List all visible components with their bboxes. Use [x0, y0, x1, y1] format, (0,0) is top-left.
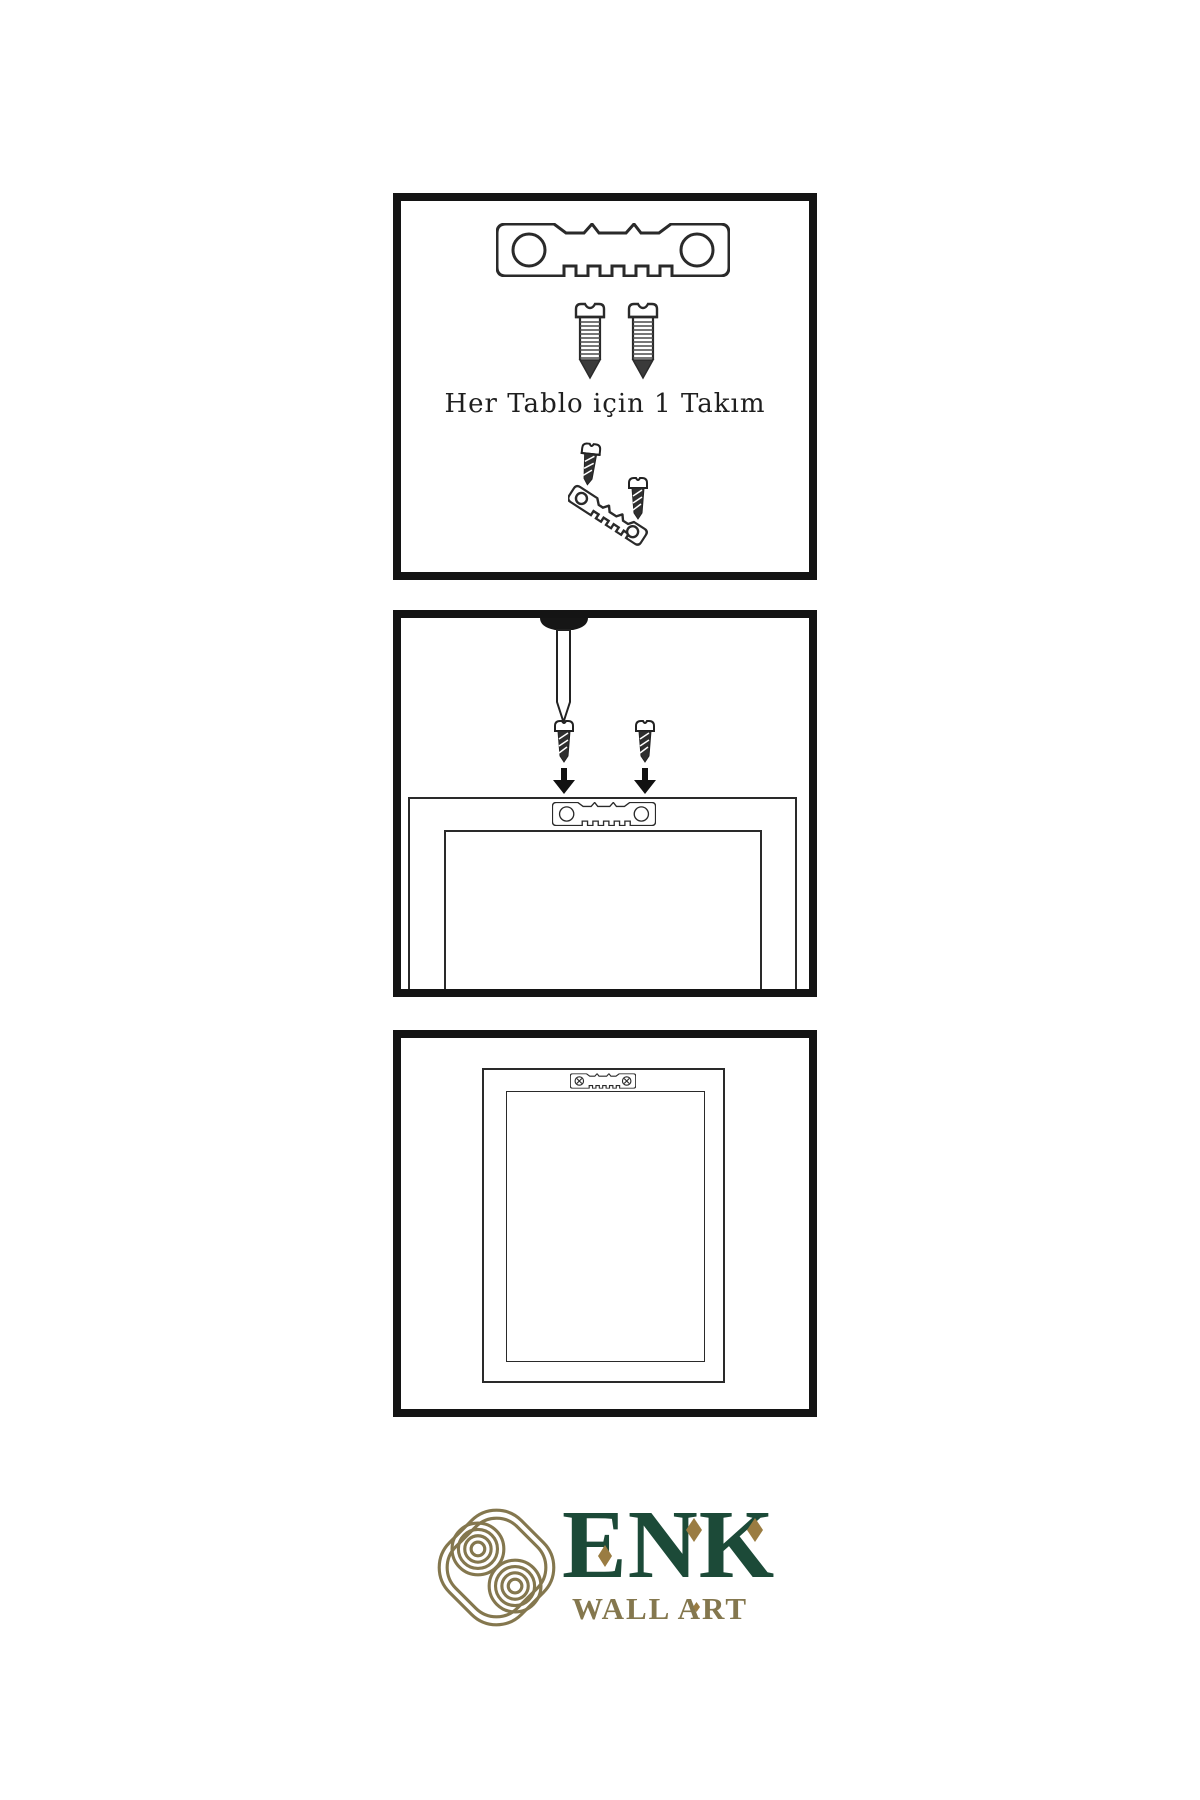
brand-name: ENK — [562, 1496, 775, 1593]
panel-hardware-kit: Her Tablo için 1 Takım — [393, 193, 817, 580]
screw-with-arrow-icon — [633, 718, 657, 794]
screw-with-arrow-icon — [552, 718, 576, 794]
wall-nail-icon — [539, 618, 589, 724]
angled-hanger-assembly-icon — [568, 441, 680, 551]
panel-hanging-result — [393, 1030, 817, 1417]
brand-subtitle: WALL ART — [572, 1593, 748, 1624]
panel-mounting-content — [401, 618, 809, 989]
frame-back-inner-edge — [444, 830, 762, 989]
panel-mounting — [393, 610, 817, 997]
screw-icon — [572, 300, 608, 380]
screw-icon — [625, 300, 661, 380]
kit-caption: Her Tablo için 1 Takım — [401, 389, 809, 419]
mounted-sawtooth-hanger-icon — [570, 1073, 636, 1089]
frame-inner-edge — [506, 1091, 705, 1362]
sawtooth-hanger-icon — [552, 802, 656, 826]
knot-logo-icon — [433, 1502, 560, 1633]
panel-hardware-kit-content: Her Tablo için 1 Takım — [401, 201, 809, 572]
sawtooth-hanger-icon — [496, 223, 730, 277]
panel-hanging-content — [401, 1038, 809, 1409]
